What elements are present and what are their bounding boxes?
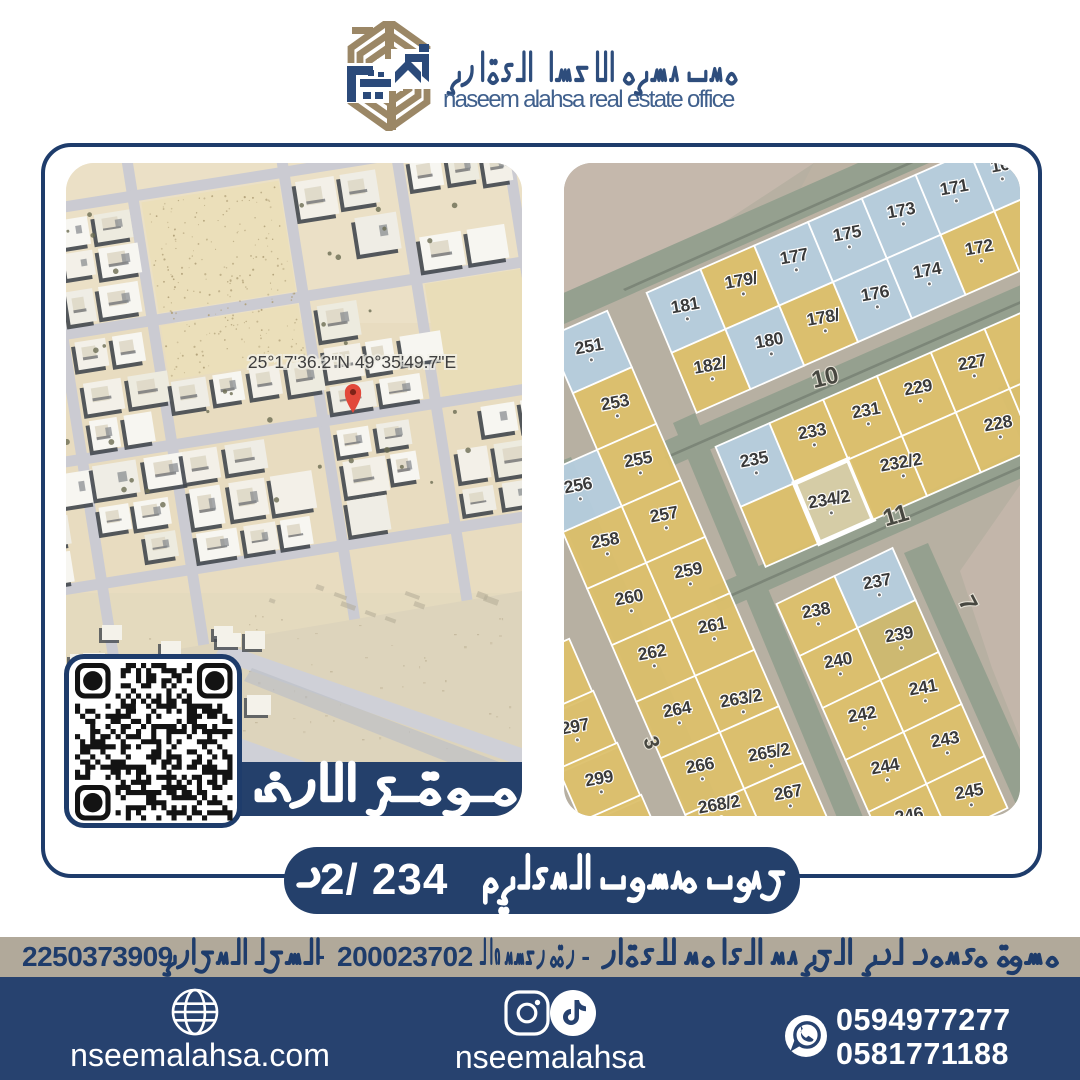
svg-text:2250373909: 2250373909	[22, 941, 173, 972]
svg-text:-: -	[581, 941, 590, 971]
svg-text:200023702: 200023702	[337, 941, 473, 972]
